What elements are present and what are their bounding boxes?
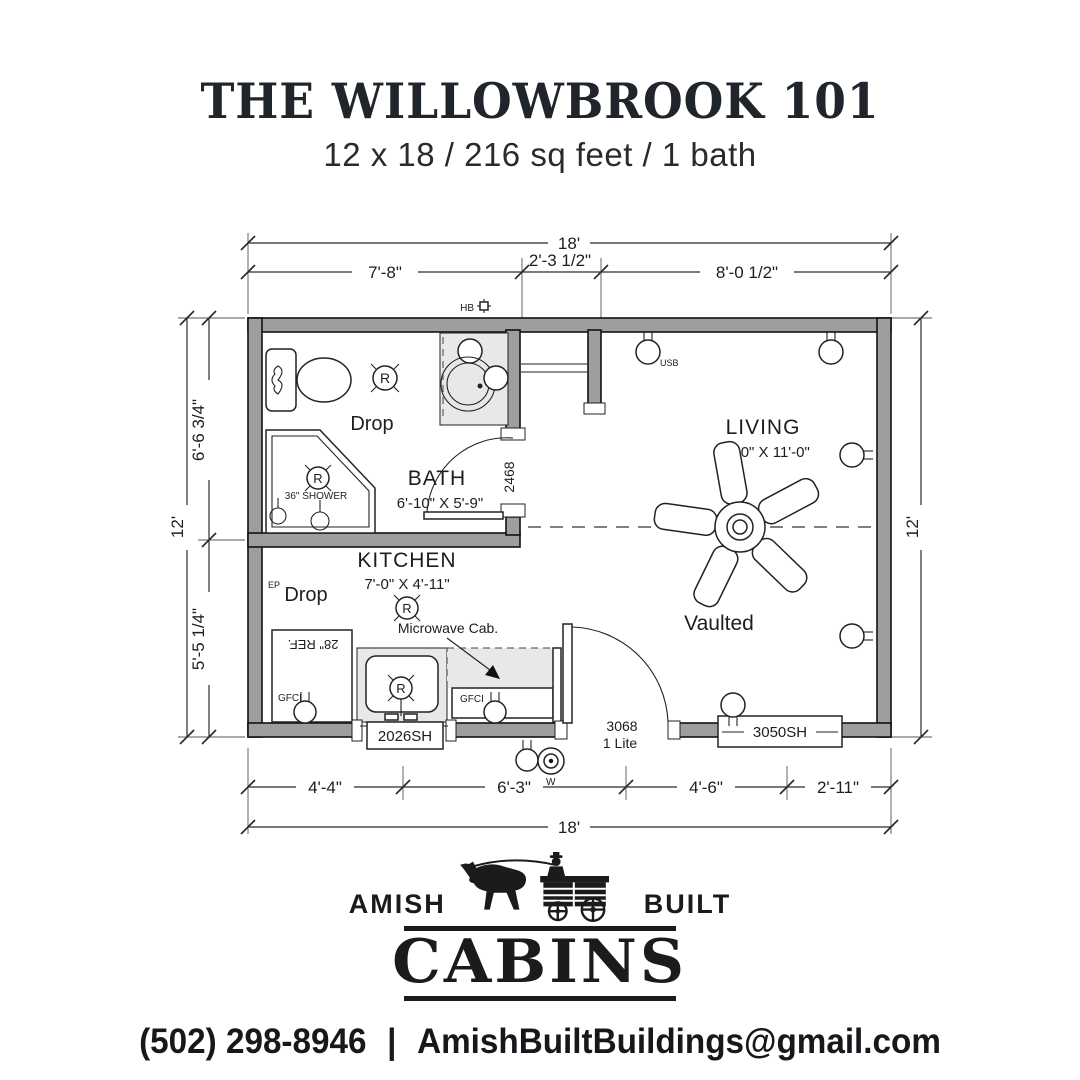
hose-bib-icon: [477, 299, 491, 313]
usb-label: USB: [660, 358, 679, 368]
logo-cabins-text: CABINS: [392, 931, 687, 994]
microwave-label: Microwave Cab.: [398, 620, 498, 636]
svg-text:R: R: [396, 681, 405, 696]
bath-drop-label: Drop: [350, 413, 393, 435]
shower-label: 36" SHOWER: [285, 491, 347, 502]
phone-number: (502) 298-8946: [139, 1022, 366, 1061]
outlet-icon: [819, 331, 843, 364]
living-room-label: LIVING: [726, 416, 801, 439]
entry-door-label: 3068: [606, 718, 637, 734]
svg-text:R: R: [313, 471, 322, 486]
ep-label: EP: [268, 580, 280, 590]
dim-bottom-1: 4'-4": [308, 778, 342, 797]
dim-top-right: 8'-0 1/2": [716, 263, 778, 282]
kitchen-window-label: 2026SH: [378, 728, 432, 745]
kitchen-drop-label: Drop: [284, 584, 327, 606]
refrigerator-label: 28" REF.: [288, 637, 339, 652]
dim-left-lower: 5'-5 1/4": [189, 608, 208, 670]
living-room: LIVING 10'-0" X 11'-0" Vaulted: [653, 416, 822, 635]
logo-amish-text: AMISH: [349, 891, 446, 924]
hose-bib-label: HB: [460, 303, 474, 314]
dim-bottom-2: 6'-3": [497, 778, 531, 797]
outlet-icon: [840, 624, 873, 648]
logo-built-text: BUILT: [644, 891, 731, 924]
living-window-label: 3050SH: [753, 724, 807, 741]
bathroom: R 36" SHOWER R Drop BATH 6'-10" X 5'-9" …: [266, 333, 517, 533]
vaulted-label: Vaulted: [684, 612, 754, 635]
dim-top-mid: 2'-3 1/2": [529, 251, 591, 270]
contact-line: (502) 298-8946 | AmishBuiltBuildings@gma…: [27, 1022, 1053, 1062]
outlet-icon: [516, 740, 538, 771]
dim-right-total: 12': [903, 516, 922, 538]
bath-door-label: 2468: [501, 461, 517, 492]
recessed-light-icon: R: [305, 465, 331, 491]
svg-text:R: R: [380, 370, 390, 386]
ceiling-fan-icon: [653, 440, 822, 610]
toilet-bowl: [297, 358, 351, 402]
dim-bottom-4: 2'-11": [817, 778, 859, 797]
dim-top-left: 7'-8": [368, 263, 402, 282]
dim-left-total: 12': [168, 516, 187, 538]
kitchen-room-label: KITCHEN: [357, 549, 456, 572]
entry-door-lite-label: 1 Lite: [603, 735, 637, 751]
dim-bottom-total: 18': [558, 818, 580, 837]
weatherproof-outlet-icon: [538, 748, 564, 774]
kitchen: KITCHEN 7'-0" X 4'-11" EP Drop R 28" REF…: [268, 549, 561, 723]
amish-built-cabins-logo: AMISH: [0, 856, 1080, 1001]
dim-bottom-3: 4'-6": [689, 778, 723, 797]
horse-and-buggy-icon: [456, 852, 634, 924]
email-address: AmishBuiltBuildings@gmail.com: [417, 1022, 941, 1061]
bath-door-leaf: [424, 512, 503, 519]
usb-outlet-icon: [636, 331, 660, 364]
gfci-label: GFCI: [460, 694, 484, 705]
svg-text:R: R: [402, 601, 411, 616]
recessed-light-icon: R: [371, 364, 399, 392]
recessed-light-icon: R: [388, 675, 414, 701]
dim-left-upper: 6'-6 3/4": [189, 399, 208, 461]
toilet-tank: [266, 349, 296, 411]
outlet-icon: [840, 443, 873, 467]
entry-door-leaf: [563, 624, 572, 723]
weatherproof-label: W: [546, 777, 556, 788]
contact-divider: |: [387, 1022, 396, 1061]
bath-room-size: 6'-10" X 5'-9": [397, 495, 483, 512]
page: THE WILLOWBROOK 101 12 x 18 / 216 sq fee…: [0, 0, 1080, 1080]
microwave-cabinet: [447, 648, 553, 688]
recessed-light-icon: R: [394, 595, 420, 621]
kitchen-room-size: 7'-0" X 4'-11": [364, 576, 449, 593]
